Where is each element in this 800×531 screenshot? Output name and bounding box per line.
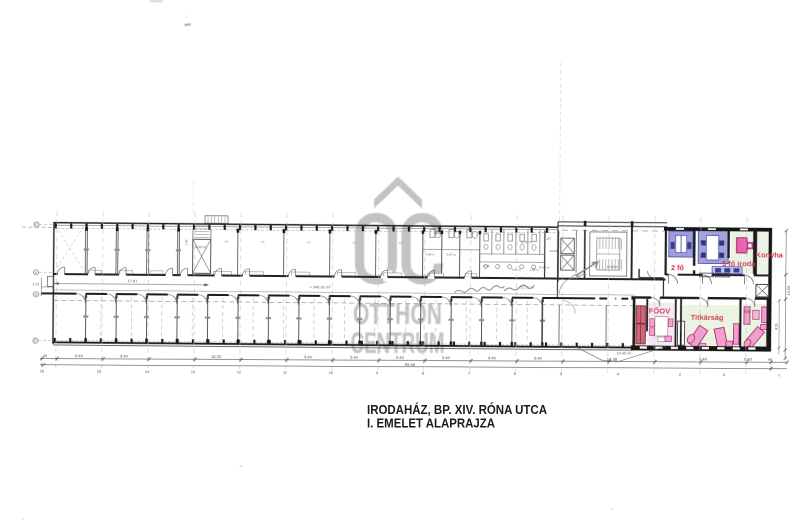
svg-text:17.61: 17.61 [127, 278, 138, 283]
svg-text:14.56: 14.56 [786, 285, 791, 296]
svg-text:15: 15 [97, 370, 101, 374]
svg-text:16: 16 [40, 369, 44, 373]
svg-text:5.40: 5.40 [120, 353, 129, 358]
svg-text:7: 7 [468, 372, 470, 376]
svg-text:4: 4 [617, 372, 619, 376]
svg-text:4.25 m: 4.25 m [426, 252, 436, 256]
svg-text:5: 5 [560, 372, 562, 376]
svg-text:3: 3 [723, 373, 725, 377]
svg-text:FŐOV: FŐOV [649, 306, 672, 315]
svg-text:4.0: 4.0 [261, 240, 265, 244]
svg-text:4.0: 4.0 [225, 240, 229, 244]
svg-text:5 fő iroda: 5 fő iroda [722, 259, 756, 268]
svg-text:5.40: 5.40 [75, 353, 84, 358]
svg-text:5.40: 5.40 [699, 356, 708, 361]
svg-text:4.25: 4.25 [484, 264, 490, 268]
svg-text:44: 44 [768, 357, 773, 362]
svg-text:1.05: 1.05 [184, 239, 188, 245]
svg-text:10.45: 10.45 [550, 249, 558, 253]
svg-text:1: 1 [778, 373, 780, 377]
svg-text:OTTHON: OTTHON [353, 298, 442, 331]
svg-text:44: 44 [43, 354, 47, 358]
svg-text:15.28 m: 15.28 m [539, 265, 550, 269]
svg-text:3.67 m: 3.67 m [447, 253, 457, 257]
svg-text:1.13: 1.13 [32, 282, 39, 286]
svg-text:14.49 m²: 14.49 m² [617, 351, 633, 355]
svg-text:4.50: 4.50 [774, 323, 778, 330]
svg-text:Titkárság: Titkárság [691, 313, 724, 322]
svg-text:14.40: 14.40 [607, 357, 618, 362]
svg-text:5.40: 5.40 [350, 355, 359, 360]
svg-text:32,17 m: 32,17 m [520, 286, 533, 291]
svg-text:11.97 m: 11.97 m [521, 240, 533, 244]
svg-text:9: 9 [376, 371, 378, 375]
svg-text:5.40: 5.40 [744, 357, 753, 362]
svg-text:5.40: 5.40 [304, 354, 313, 359]
svg-text:6: 6 [514, 372, 516, 376]
svg-text:4.0: 4.0 [399, 241, 403, 245]
svg-text:10: 10 [329, 371, 333, 375]
svg-text:8: 8 [422, 371, 424, 375]
svg-text:85.46: 85.46 [405, 362, 416, 367]
svg-text:20.40 m: 20.40 m [194, 245, 206, 249]
svg-text:5.40: 5.40 [442, 355, 451, 360]
svg-text:I. EMELET ALAPRAJZA: I. EMELET ALAPRAJZA [367, 416, 495, 431]
svg-text:2 fő: 2 fő [671, 263, 684, 272]
svg-text:ÜV: ÜV [745, 308, 751, 314]
svg-text:5.40: 5.40 [488, 355, 497, 360]
svg-text:≈ 246.91 m²: ≈ 246.91 m² [309, 284, 331, 289]
svg-text:5.40: 5.40 [396, 355, 405, 360]
svg-text:4.0: 4.0 [307, 240, 311, 244]
svg-text:5.40: 5.40 [534, 356, 543, 361]
svg-text:12: 12 [237, 370, 241, 374]
svg-text:16.20: 16.20 [211, 354, 222, 359]
svg-text:2: 2 [679, 373, 681, 377]
svg-text:11: 11 [283, 371, 287, 375]
svg-text:13: 13 [191, 370, 195, 374]
svg-text:14: 14 [145, 370, 149, 374]
svg-text:4.0: 4.0 [353, 241, 357, 245]
svg-text:Konyha: Konyha [756, 250, 784, 259]
